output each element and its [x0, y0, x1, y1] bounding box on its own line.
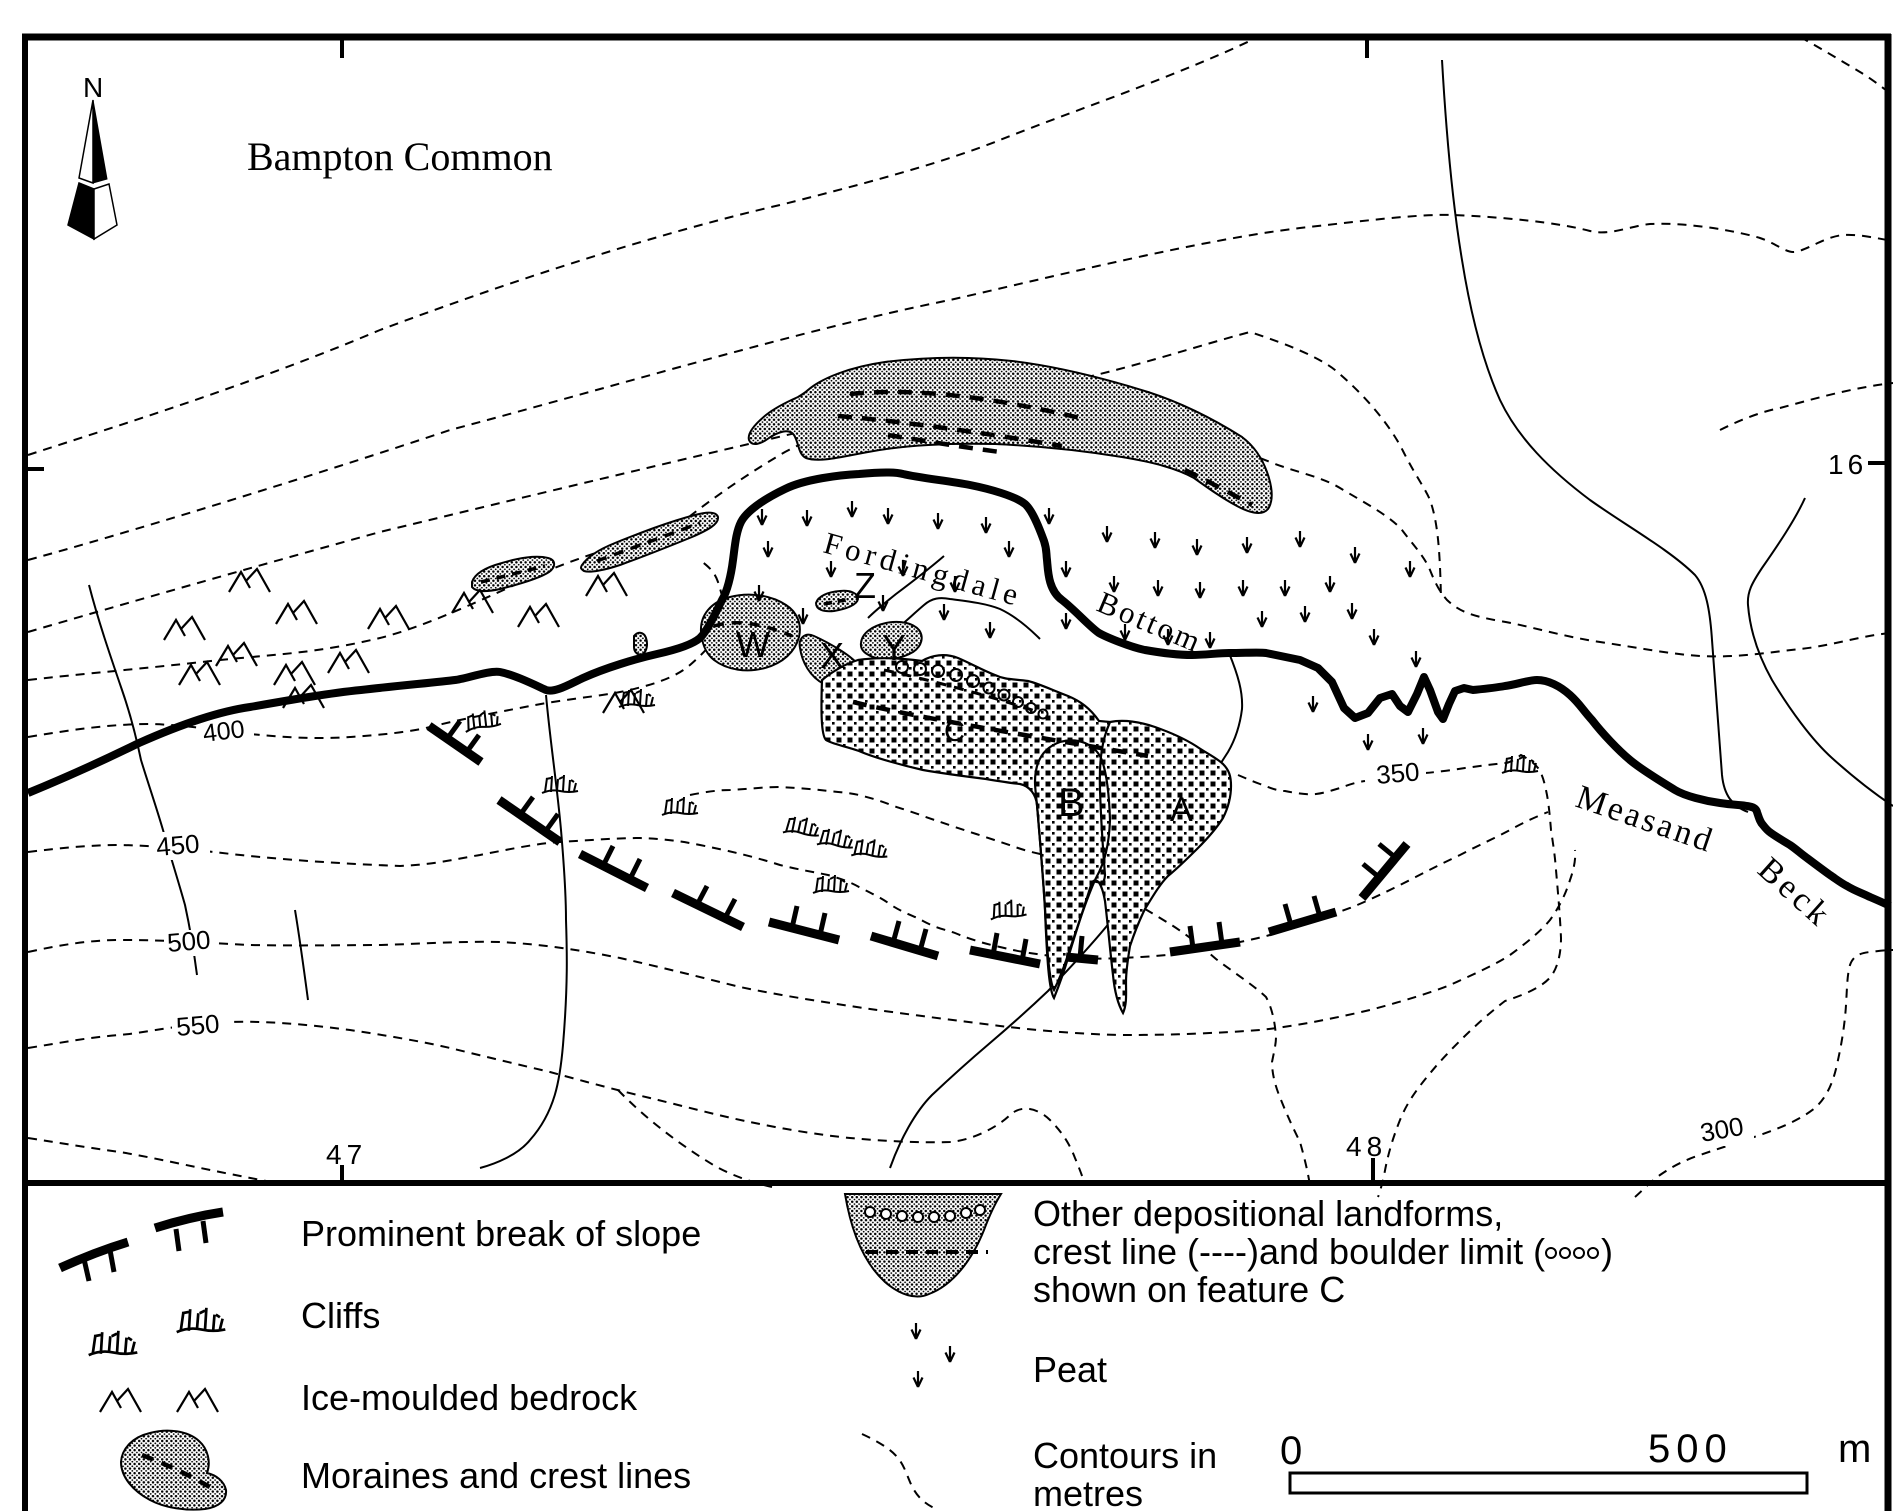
svg-text:Y: Y — [882, 627, 906, 668]
svg-text:Other depositional landforms,: Other depositional landforms, — [1033, 1193, 1503, 1234]
svg-text:Contours in: Contours in — [1033, 1435, 1217, 1476]
svg-text:shown on feature C: shown on feature C — [1033, 1269, 1345, 1310]
svg-text:crest line (----)and boulder l: crest line (----)and boulder limit ( — [1033, 1231, 1545, 1272]
svg-text:350: 350 — [1375, 756, 1421, 790]
svg-text:Prominent break of slope: Prominent break of slope — [301, 1213, 701, 1254]
svg-text:Ice-moulded bedrock: Ice-moulded bedrock — [301, 1377, 638, 1418]
svg-text:500: 500 — [166, 924, 212, 958]
svg-text:metres: metres — [1033, 1473, 1143, 1511]
svg-text:C: C — [944, 716, 965, 748]
svg-text:47: 47 — [326, 1139, 367, 1170]
svg-text:Cliffs: Cliffs — [301, 1295, 380, 1336]
svg-text:Bampton Common: Bampton Common — [247, 134, 553, 179]
svg-text:500: 500 — [1648, 1427, 1733, 1471]
svg-text:0: 0 — [1280, 1429, 1302, 1473]
svg-text:m: m — [1838, 1427, 1871, 1471]
svg-text:16: 16 — [1828, 449, 1867, 480]
svg-text:W: W — [736, 624, 770, 665]
svg-text:X: X — [820, 635, 844, 676]
svg-text:550: 550 — [175, 1008, 221, 1042]
svg-text:48: 48 — [1346, 1131, 1387, 1162]
svg-text:): ) — [1601, 1231, 1613, 1272]
svg-text:Moraines and crest lines: Moraines and crest lines — [301, 1455, 691, 1496]
svg-text:N: N — [83, 72, 103, 103]
svg-text:A: A — [1170, 791, 1193, 829]
svg-text:450: 450 — [155, 828, 201, 862]
svg-text:B: B — [1058, 781, 1085, 825]
svg-text:Peat: Peat — [1033, 1349, 1107, 1390]
svg-text:Z: Z — [854, 565, 876, 606]
svg-text:400: 400 — [201, 715, 246, 748]
